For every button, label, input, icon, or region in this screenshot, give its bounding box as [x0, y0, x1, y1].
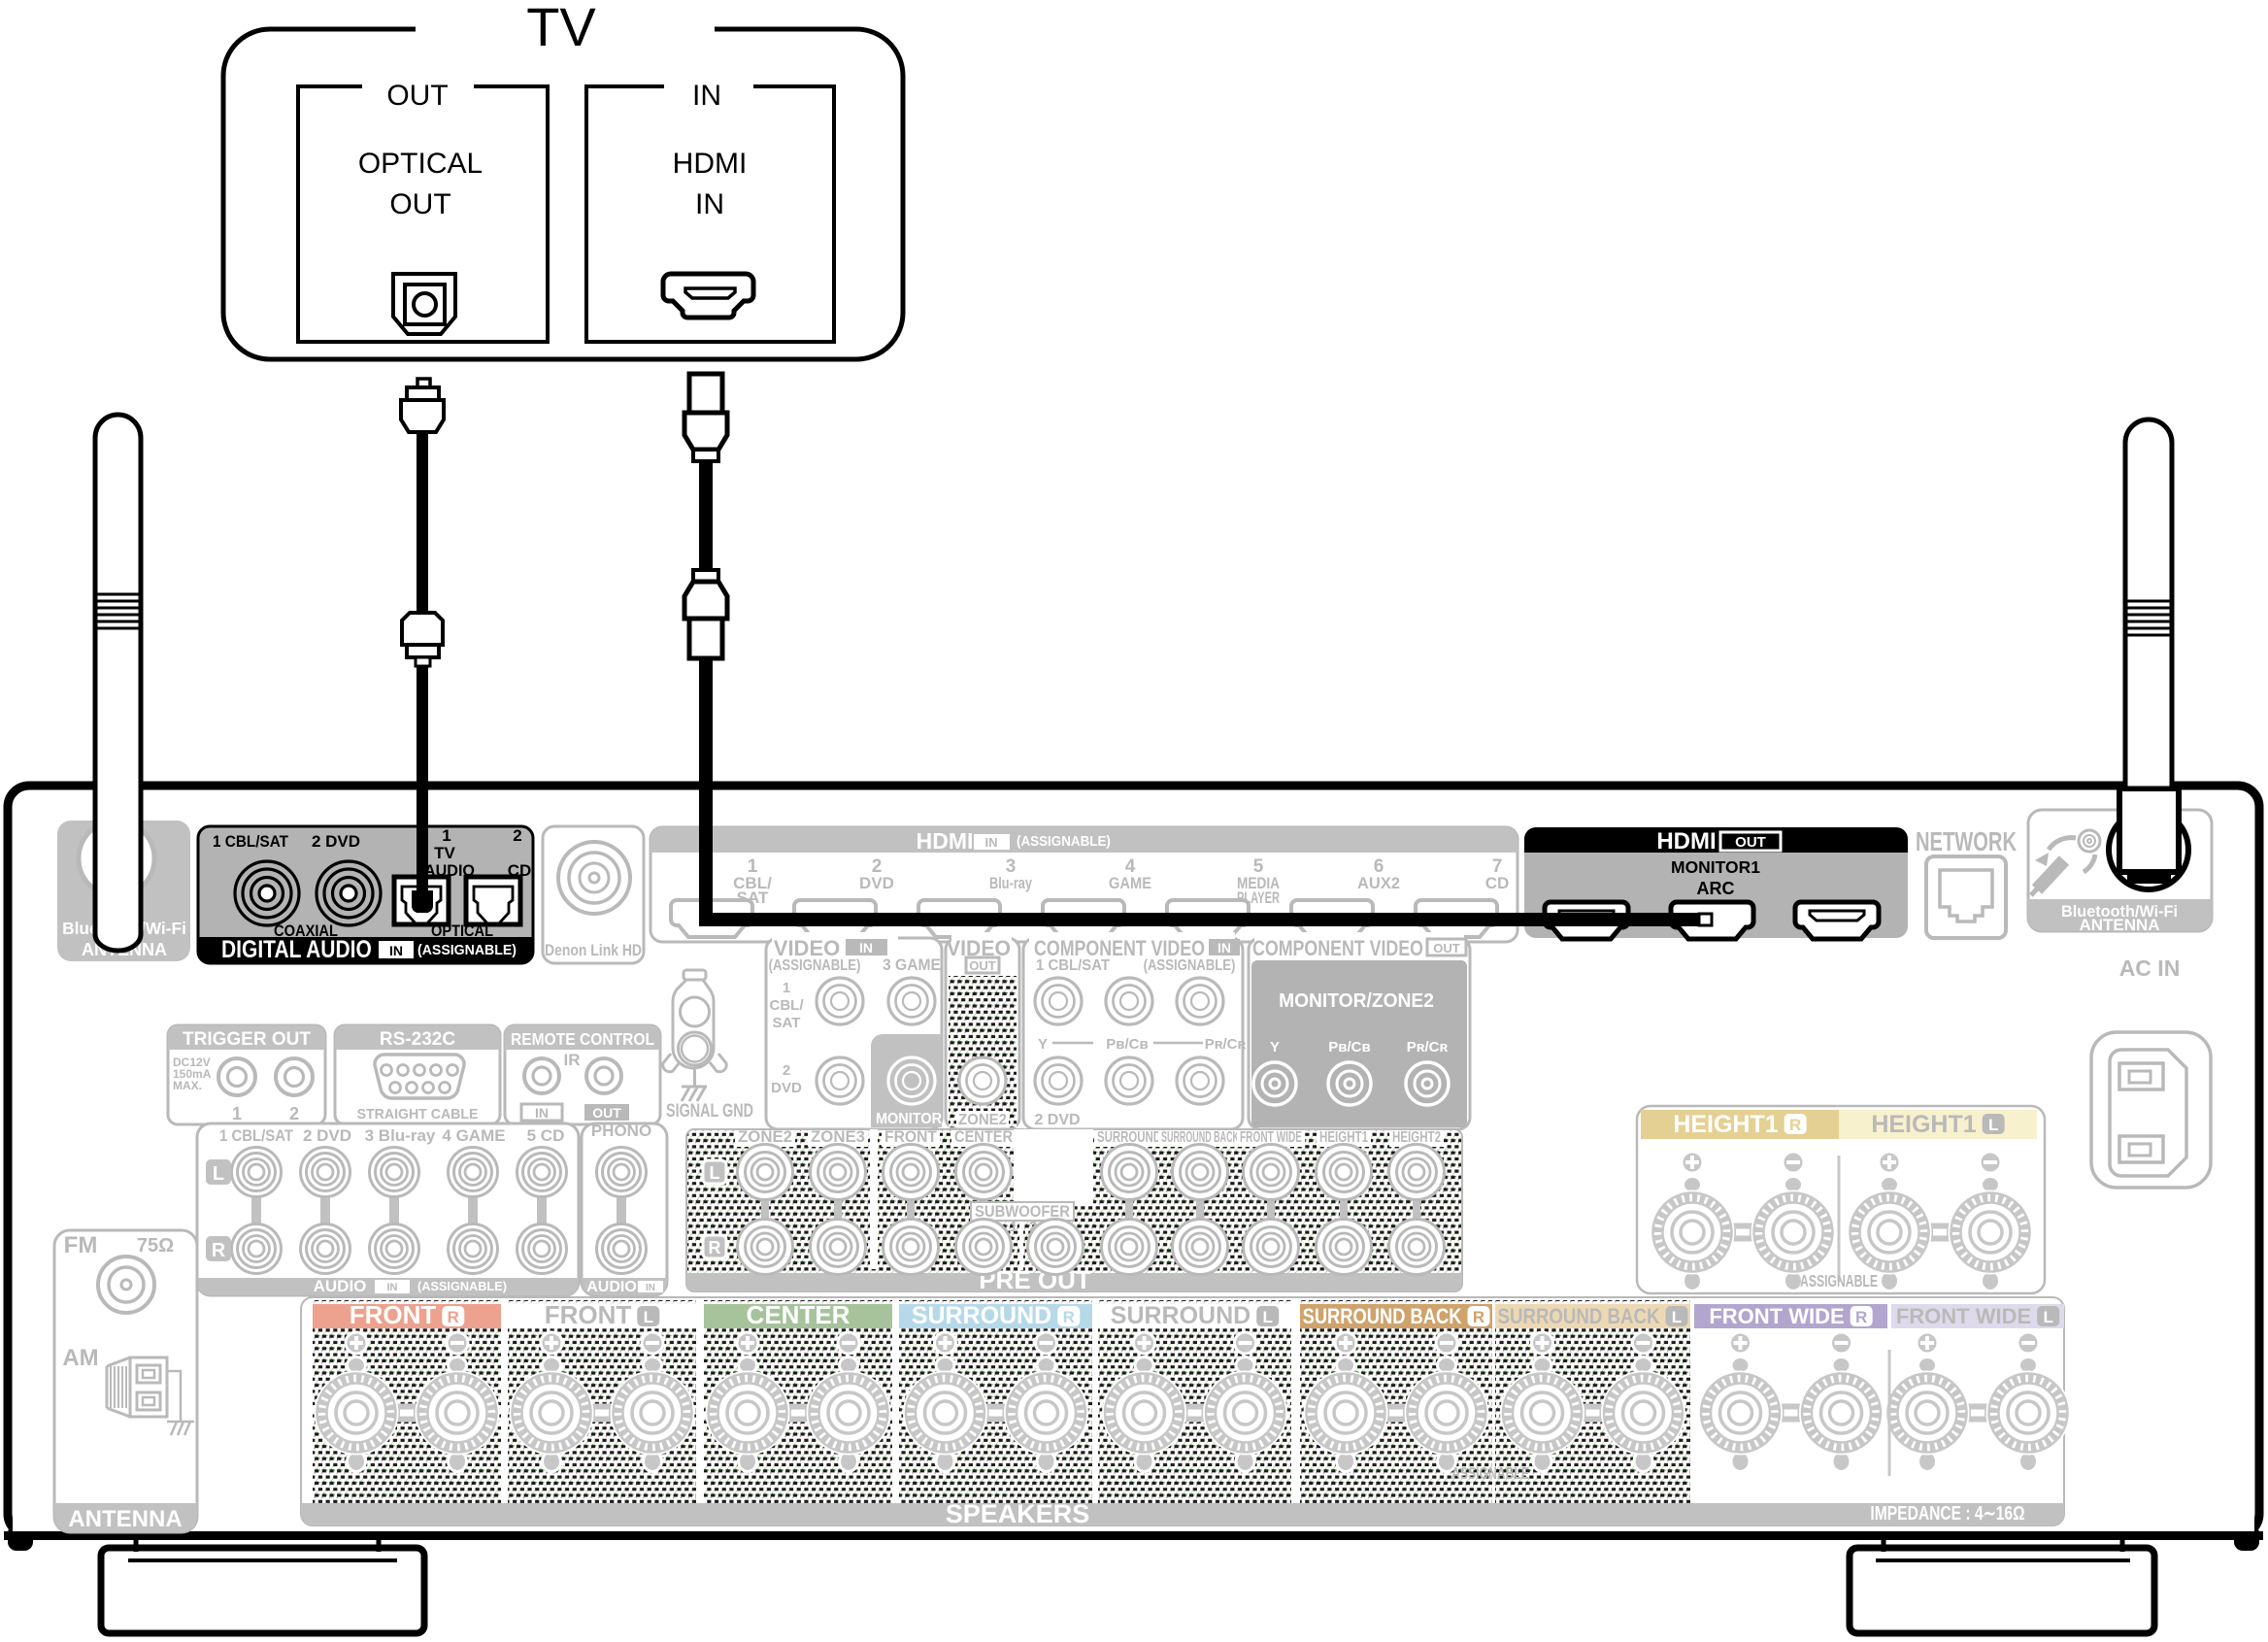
svg-text:ASSIGNABLE: ASSIGNABLE: [1800, 1272, 1878, 1291]
svg-text:IN: IN: [387, 1282, 398, 1293]
svg-text:IMPEDANCE : 4∼16Ω: IMPEDANCE : 4∼16Ω: [1870, 1502, 2024, 1524]
svg-text:Denon Link HD: Denon Link HD: [545, 942, 642, 960]
svg-text:(ASSIGNABLE): (ASSIGNABLE): [1017, 833, 1111, 850]
svg-text:HDMI: HDMI: [673, 148, 748, 180]
svg-text:R: R: [709, 1238, 721, 1257]
svg-text:4: 4: [1125, 856, 1136, 877]
svg-text:TV: TV: [434, 844, 455, 862]
svg-text:1: 1: [1010, 1219, 1017, 1235]
svg-text:AUX2: AUX2: [1357, 874, 1400, 892]
svg-text:SURROUND: SURROUND: [1111, 1302, 1251, 1329]
svg-text:L: L: [1263, 1308, 1273, 1326]
svg-text:L: L: [1672, 1308, 1682, 1326]
svg-text:NETWORK: NETWORK: [1916, 827, 2017, 857]
svg-text:IN: IN: [692, 80, 721, 112]
svg-text:SURROUND BACK: SURROUND BACK: [1303, 1306, 1462, 1329]
svg-text:L: L: [644, 1308, 653, 1326]
svg-text:Pʙ/Cʙ: Pʙ/Cʙ: [1328, 1039, 1370, 1056]
svg-text:DIGITAL AUDIO: DIGITAL AUDIO: [221, 935, 372, 962]
svg-text:2 DVD: 2 DVD: [312, 832, 360, 851]
svg-text:OUT: OUT: [389, 188, 450, 220]
svg-text:OPTICAL: OPTICAL: [358, 148, 483, 180]
svg-text:OUT: OUT: [592, 1105, 621, 1121]
svg-text:75Ω: 75Ω: [137, 1235, 174, 1257]
svg-text:FRONT: FRONT: [545, 1300, 632, 1329]
svg-text:1: 1: [442, 826, 450, 845]
svg-text:SURROUND BACK: SURROUND BACK: [1161, 1127, 1239, 1146]
svg-text:5 CD: 5 CD: [527, 1126, 565, 1145]
svg-text:FM: FM: [64, 1232, 98, 1258]
svg-text:ANTENNA: ANTENNA: [68, 1506, 182, 1532]
svg-text:L: L: [213, 1163, 224, 1185]
svg-text:HEIGHT2: HEIGHT2: [1392, 1127, 1441, 1145]
svg-text:MAX.: MAX.: [173, 1079, 202, 1092]
svg-text:SURROUND: SURROUND: [912, 1302, 1051, 1329]
svg-text:IR: IR: [564, 1051, 581, 1069]
svg-text:OUT: OUT: [1433, 941, 1460, 955]
svg-text:IN: IN: [985, 835, 998, 850]
svg-text:IN: IN: [646, 1283, 655, 1293]
svg-text:2: 2: [289, 1104, 299, 1123]
svg-text:MONITOR/ZONE2: MONITOR/ZONE2: [1279, 990, 1434, 1012]
svg-text:R: R: [1473, 1308, 1484, 1326]
svg-text:ANTENNA: ANTENNA: [2079, 916, 2159, 934]
svg-text:1 CBL/SAT: 1 CBL/SAT: [219, 1127, 293, 1145]
svg-text:R: R: [212, 1240, 226, 1261]
svg-text:SAT: SAT: [773, 1015, 801, 1031]
svg-text:OUT: OUT: [969, 958, 996, 973]
svg-text:1 CBL/SAT: 1 CBL/SAT: [1036, 957, 1111, 975]
svg-text:COMPONENT VIDEO: COMPONENT VIDEO: [1252, 937, 1423, 960]
svg-text:Pʀ/Cʀ: Pʀ/Cʀ: [1205, 1036, 1247, 1053]
svg-text:Pʙ/Cʙ: Pʙ/Cʙ: [1106, 1036, 1148, 1053]
svg-text:DVD: DVD: [859, 874, 894, 892]
svg-text:OUT: OUT: [386, 80, 448, 112]
svg-text:1: 1: [783, 980, 790, 996]
svg-text:ARC: ARC: [1697, 879, 1735, 898]
svg-text:SURROUND: SURROUND: [1097, 1127, 1161, 1145]
svg-text:ASSIGNABLE: ASSIGNABLE: [1451, 1464, 1529, 1484]
svg-text:2: 2: [513, 826, 521, 845]
svg-text:OPTICAL: OPTICAL: [431, 922, 493, 940]
svg-text:CENTER: CENTER: [747, 1300, 850, 1329]
svg-text:3 Blu-ray: 3 Blu-ray: [365, 1126, 436, 1145]
svg-text:STRAIGHT CABLE: STRAIGHT CABLE: [357, 1107, 479, 1123]
svg-text:R: R: [1855, 1308, 1867, 1326]
svg-text:IN: IN: [535, 1105, 549, 1121]
svg-text:L: L: [1988, 1116, 1998, 1134]
svg-text:HDMI: HDMI: [1656, 828, 1716, 855]
svg-text:SURROUND BACK: SURROUND BACK: [1498, 1306, 1660, 1329]
svg-text:IN: IN: [1217, 940, 1231, 955]
svg-text:R: R: [448, 1308, 459, 1326]
svg-text:L: L: [2043, 1308, 2052, 1326]
svg-text:AUDIO: AUDIO: [314, 1277, 367, 1295]
svg-text:REMOTE CONTROL: REMOTE CONTROL: [511, 1029, 654, 1049]
svg-text:3 GAME: 3 GAME: [883, 955, 941, 974]
svg-text:OUT: OUT: [1735, 834, 1766, 851]
svg-text:Y: Y: [1270, 1039, 1280, 1056]
svg-text:(ASSIGNABLE): (ASSIGNABLE): [417, 943, 517, 958]
svg-text:ZONE2: ZONE2: [958, 1112, 1007, 1129]
svg-text:Pʀ/Cʀ: Pʀ/Cʀ: [1407, 1039, 1449, 1056]
svg-text:IN: IN: [389, 943, 403, 958]
svg-text:L: L: [710, 1163, 720, 1183]
svg-text:Y: Y: [1038, 1036, 1048, 1053]
svg-text:FRONT WIDE: FRONT WIDE: [1240, 1128, 1302, 1146]
svg-text:HEIGHT1: HEIGHT1: [1673, 1111, 1778, 1138]
svg-text:HDMI: HDMI: [917, 828, 974, 854]
svg-text:MONITOR: MONITOR: [876, 1110, 942, 1127]
svg-text:GAME: GAME: [1109, 875, 1151, 892]
svg-text:TRIGGER OUT: TRIGGER OUT: [183, 1029, 311, 1050]
svg-text:1: 1: [232, 1104, 242, 1123]
svg-text:(ASSIGNABLE): (ASSIGNABLE): [769, 957, 861, 974]
svg-text:R: R: [1063, 1308, 1075, 1326]
svg-text:R: R: [1789, 1116, 1801, 1134]
svg-text:AC IN: AC IN: [2119, 955, 2181, 981]
svg-text:(ASSIGNABLE): (ASSIGNABLE): [417, 1279, 507, 1293]
svg-text:(ASSIGNABLE): (ASSIGNABLE): [1144, 957, 1236, 974]
svg-text:HEIGHT1: HEIGHT1: [1871, 1111, 1976, 1138]
svg-text:FRONT: FRONT: [350, 1300, 437, 1329]
svg-text:PHONO: PHONO: [591, 1122, 651, 1140]
svg-text:4 GAME: 4 GAME: [442, 1126, 505, 1145]
svg-text:SPEAKERS: SPEAKERS: [946, 1499, 1090, 1528]
svg-text:AUDIO: AUDIO: [586, 1279, 637, 1295]
svg-text:RS-232C: RS-232C: [380, 1029, 455, 1050]
svg-text:TV: TV: [526, 0, 596, 57]
svg-text:2 DVD: 2 DVD: [303, 1126, 351, 1145]
svg-text:IN: IN: [695, 188, 724, 220]
svg-text:CBL/: CBL/: [770, 997, 805, 1014]
svg-text:2 DVD: 2 DVD: [1034, 1112, 1080, 1128]
svg-text:AM: AM: [62, 1345, 98, 1371]
svg-text:CD: CD: [1485, 874, 1510, 892]
svg-text:Blu-ray: Blu-ray: [989, 874, 1032, 892]
svg-text:HEIGHT1: HEIGHT1: [1319, 1127, 1368, 1145]
svg-text:DVD: DVD: [771, 1080, 802, 1096]
svg-text:FRONT WIDE: FRONT WIDE: [1896, 1304, 2031, 1328]
svg-text:1 CBL/SAT: 1 CBL/SAT: [213, 832, 288, 851]
svg-text:FRONT WIDE: FRONT WIDE: [1709, 1304, 1844, 1328]
svg-text:IN: IN: [859, 940, 873, 955]
svg-text:2: 2: [783, 1062, 790, 1079]
svg-text:MONITOR1: MONITOR1: [1671, 857, 1760, 877]
svg-text:SIGNAL GND: SIGNAL GND: [666, 1100, 753, 1121]
